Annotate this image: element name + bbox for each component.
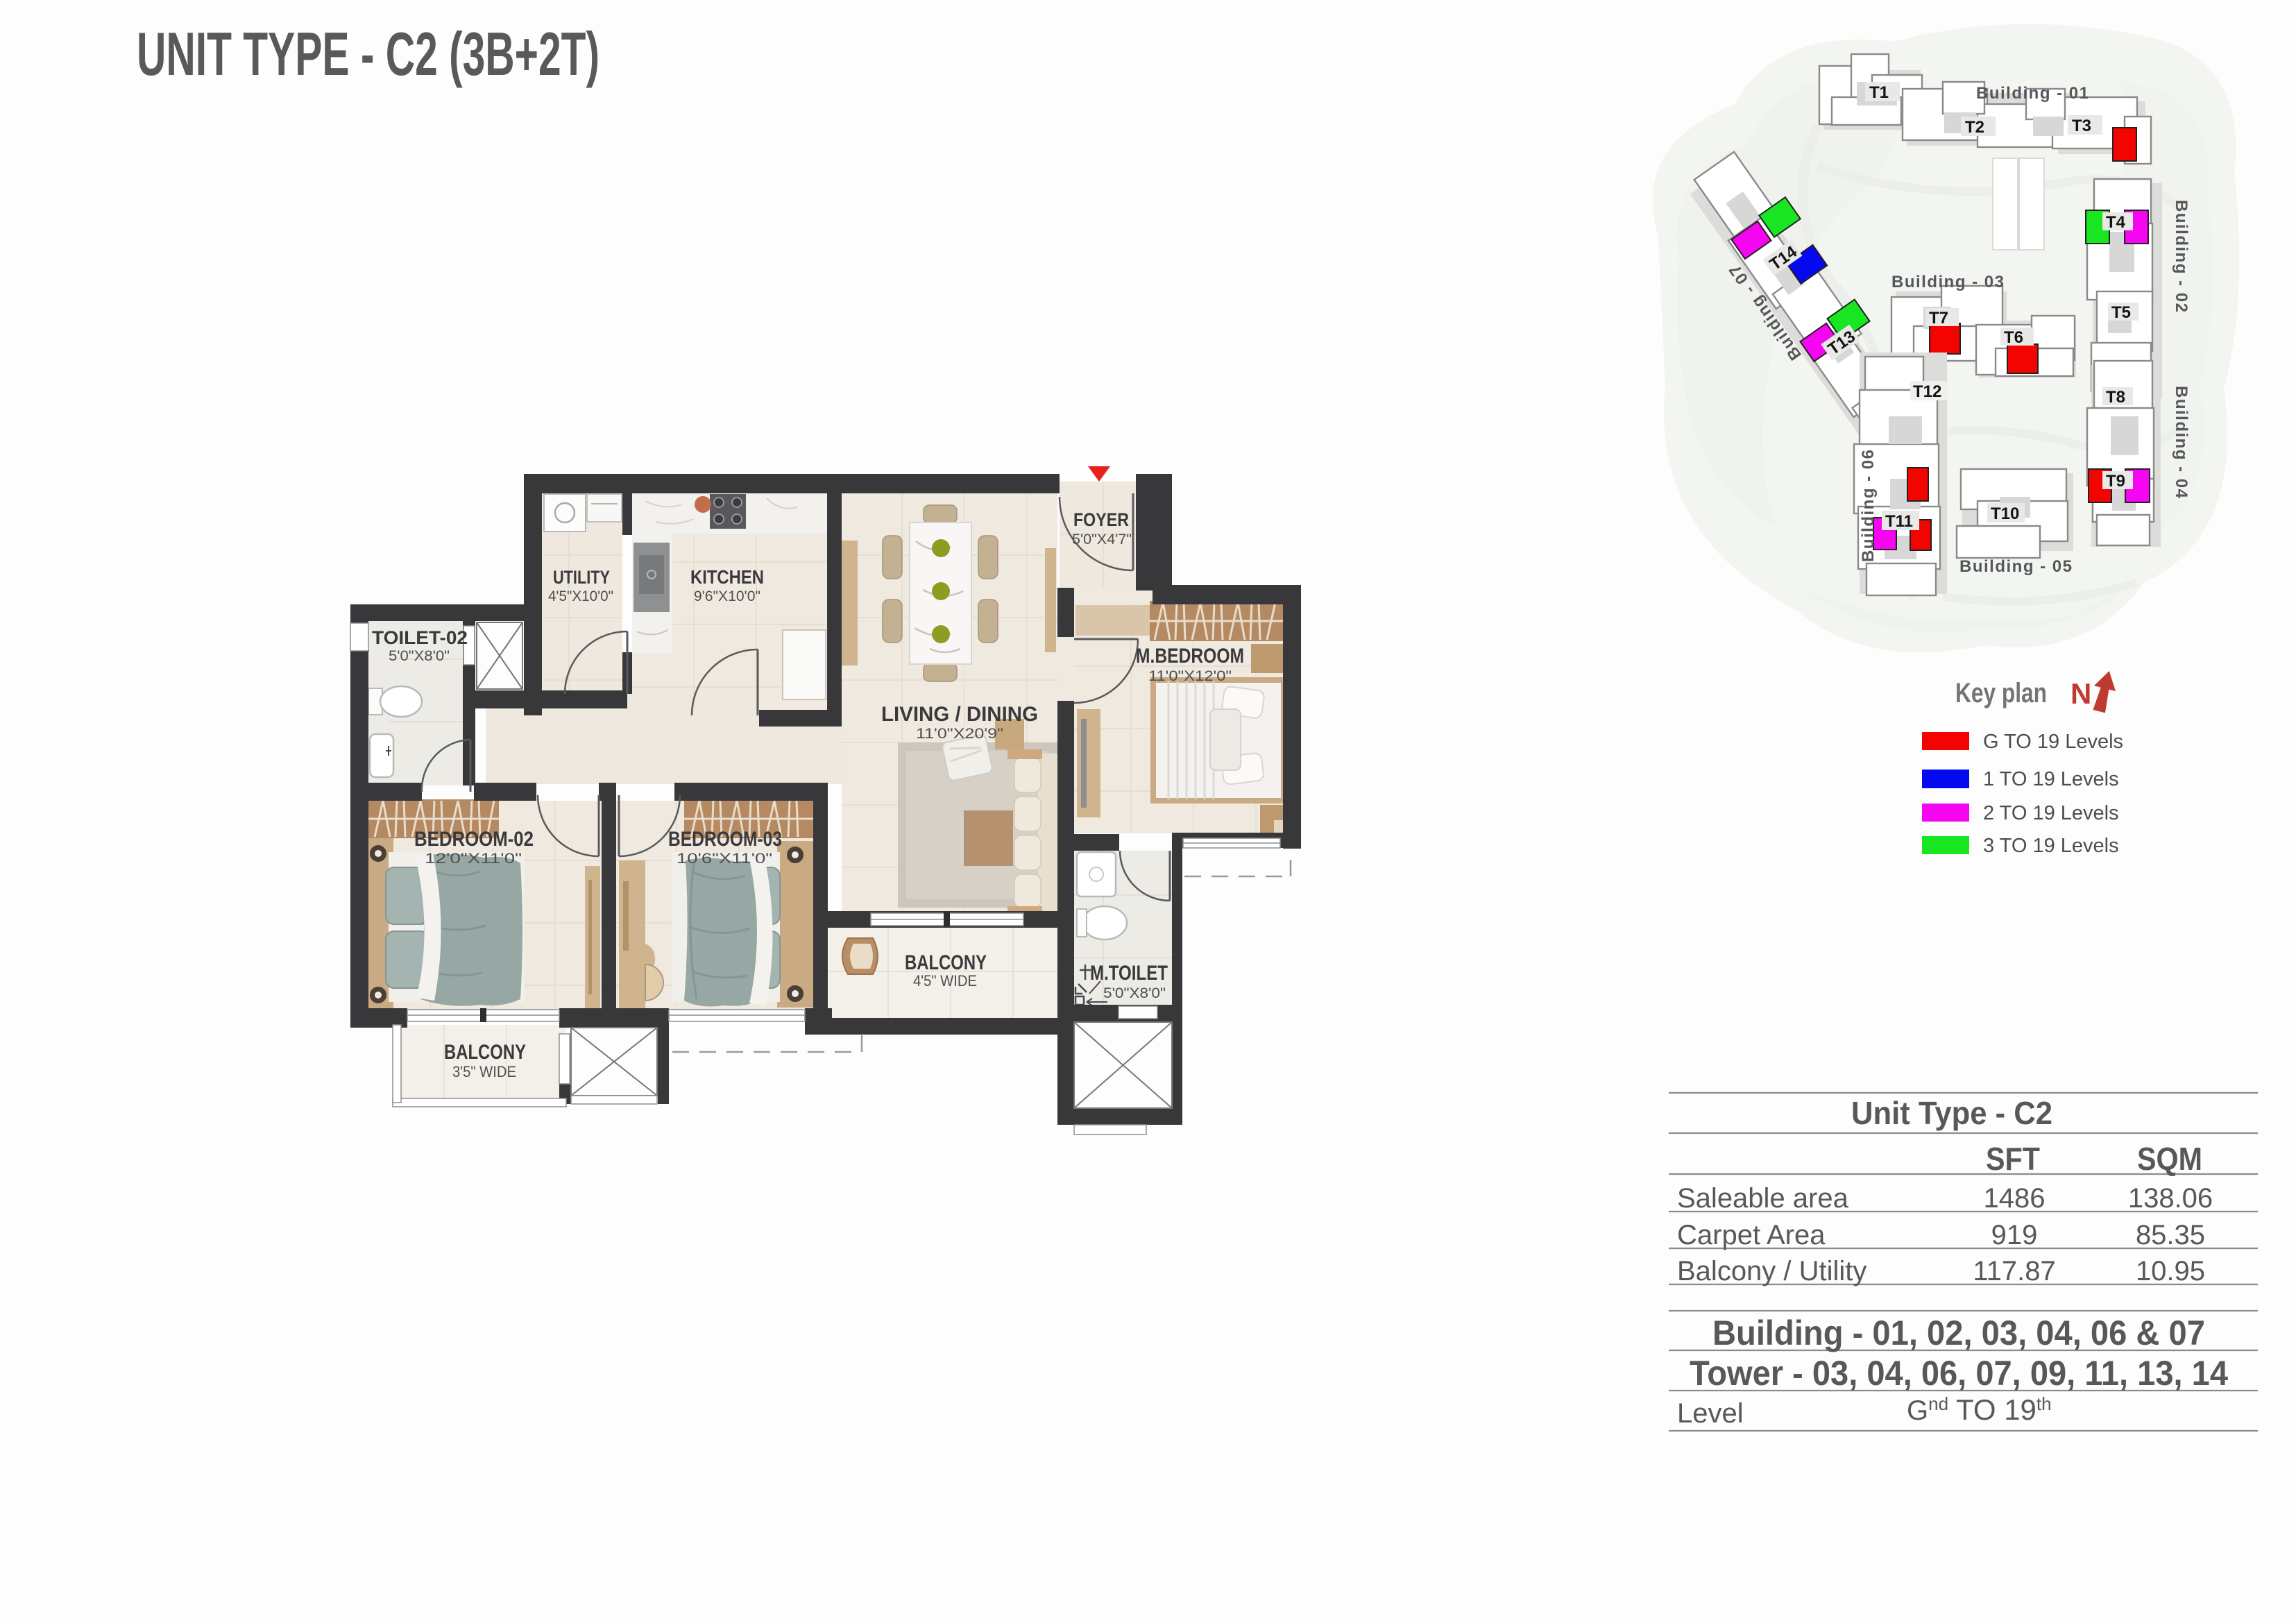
svg-text:Building - 01, 02, 03, 04, 06: Building - 01, 02, 03, 04, 06 & 07 [1712, 1314, 2205, 1352]
svg-text:BALCONY: BALCONY [905, 951, 987, 974]
svg-text:TOILET-02: TOILET-02 [372, 627, 468, 648]
svg-text:T8: T8 [2106, 388, 2125, 407]
svg-text:BEDROOM-02: BEDROOM-02 [414, 828, 534, 851]
svg-text:Building - 04: Building - 04 [2172, 386, 2191, 500]
svg-text:5'0"X8'0": 5'0"X8'0" [389, 648, 450, 664]
svg-text:T12: T12 [1913, 382, 1941, 401]
svg-text:9'6"X10'0": 9'6"X10'0" [694, 588, 760, 604]
svg-text:919: 919 [1991, 1220, 2038, 1250]
svg-text:FOYER: FOYER [1073, 509, 1129, 530]
svg-text:10'6"X11'0": 10'6"X11'0" [677, 851, 772, 867]
svg-text:3'5" WIDE: 3'5" WIDE [452, 1063, 516, 1080]
svg-text:10.95: 10.95 [2136, 1256, 2205, 1286]
svg-text:Unit Type - C2: Unit Type - C2 [1851, 1095, 2052, 1131]
svg-text:KITCHEN: KITCHEN [690, 566, 764, 588]
svg-text:1 TO 19 Levels: 1 TO 19 Levels [1983, 768, 2119, 790]
svg-text:Level: Level [1677, 1398, 1744, 1429]
svg-text:Key plan: Key plan [1955, 678, 2047, 708]
svg-text:12'0"X11'0": 12'0"X11'0" [425, 851, 522, 867]
svg-text:LIVING / DINING: LIVING / DINING [881, 703, 1038, 726]
svg-text:N: N [2070, 677, 2091, 710]
svg-text:T3: T3 [2072, 117, 2091, 135]
svg-text:T10: T10 [1991, 504, 2019, 523]
svg-text:85.35: 85.35 [2136, 1220, 2205, 1250]
svg-text:1486: 1486 [1984, 1183, 2046, 1214]
svg-text:Building - 03: Building - 03 [1891, 273, 2005, 291]
svg-text:Carpet Area: Carpet Area [1677, 1220, 1826, 1250]
svg-text:T11: T11 [1885, 512, 1913, 531]
svg-text:T6: T6 [2004, 328, 2023, 347]
svg-text:UTILITY: UTILITY [553, 567, 610, 588]
svg-text:4'5" WIDE: 4'5" WIDE [913, 972, 977, 989]
svg-text:BEDROOM-03: BEDROOM-03 [668, 828, 782, 851]
svg-text:Balcony / Utility: Balcony / Utility [1677, 1256, 1866, 1286]
svg-text:SFT: SFT [1986, 1141, 2040, 1177]
svg-text:T1: T1 [1869, 83, 1889, 102]
svg-text:T4: T4 [2106, 213, 2126, 232]
svg-text:5'0"X8'0": 5'0"X8'0" [1103, 985, 1166, 1001]
svg-text:11'0"X12'0": 11'0"X12'0" [1148, 668, 1232, 684]
svg-text:BALCONY: BALCONY [444, 1041, 526, 1064]
svg-text:UNIT TYPE - C2 (3B+2T): UNIT TYPE - C2 (3B+2T) [137, 19, 599, 88]
svg-text:5'0"X4'7": 5'0"X4'7" [1072, 532, 1132, 547]
svg-text:Building - 06: Building - 06 [1859, 449, 1878, 563]
svg-text:M.BEDROOM: M.BEDROOM [1136, 645, 1244, 668]
svg-text:Building - 01: Building - 01 [1976, 84, 2090, 103]
svg-text:T7: T7 [1929, 309, 1948, 328]
svg-text:2 TO 19 Levels: 2 TO 19 Levels [1983, 802, 2119, 824]
svg-text:Building - 05: Building - 05 [1959, 557, 2073, 576]
svg-text:117.87: 117.87 [1973, 1256, 2055, 1286]
svg-text:11'0"X20'9": 11'0"X20'9" [916, 726, 1003, 742]
svg-text:Tower - 03, 04, 06, 07, 09, 11: Tower - 03, 04, 06, 07, 09, 11, 13, 14 [1690, 1354, 2228, 1393]
svg-text:Saleable area: Saleable area [1677, 1183, 1849, 1214]
svg-text:T2: T2 [1965, 118, 1984, 137]
svg-text:4'5"X10'0": 4'5"X10'0" [548, 588, 613, 604]
svg-text:M.TOILET: M.TOILET [1090, 962, 1168, 985]
svg-text:SQM: SQM [2137, 1141, 2202, 1177]
svg-text:G TO 19 Levels: G TO 19 Levels [1983, 731, 2123, 753]
svg-text:T9: T9 [2106, 472, 2125, 491]
svg-text:138.06: 138.06 [2128, 1183, 2213, 1214]
svg-text:Building - 02: Building - 02 [2172, 200, 2191, 314]
svg-text:T5: T5 [2111, 303, 2131, 322]
svg-text:3 TO 19 Levels: 3 TO 19 Levels [1983, 835, 2119, 857]
